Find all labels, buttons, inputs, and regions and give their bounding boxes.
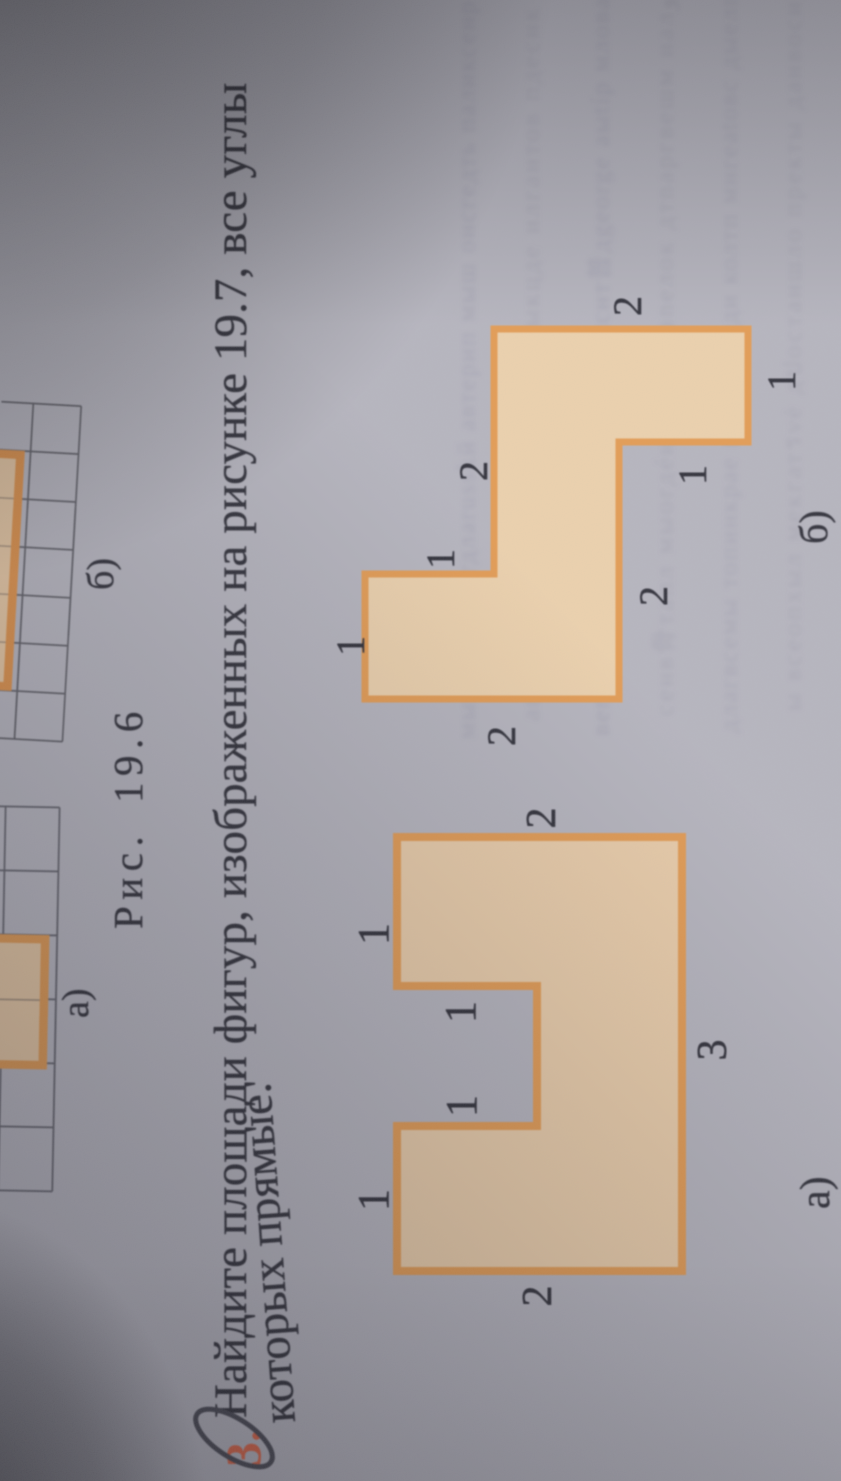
svg-text:1: 1 [759, 371, 804, 391]
svg-text:2: 2 [479, 726, 524, 746]
svg-text:2: 2 [605, 296, 650, 316]
svg-text:2: 2 [451, 461, 496, 481]
svg-text:1: 1 [670, 465, 715, 485]
svg-text:1: 1 [328, 636, 373, 656]
svg-text:2: 2 [631, 586, 676, 606]
svg-text:1: 1 [349, 923, 398, 945]
svg-text:3: 3 [690, 1040, 736, 1061]
svg-text:1: 1 [436, 1001, 485, 1023]
svg-text:1: 1 [437, 1095, 486, 1117]
svg-text:1: 1 [349, 1189, 398, 1211]
svg-text:2: 2 [515, 1286, 561, 1307]
svg-text:2: 2 [519, 808, 565, 829]
svg-text:1: 1 [418, 549, 463, 569]
